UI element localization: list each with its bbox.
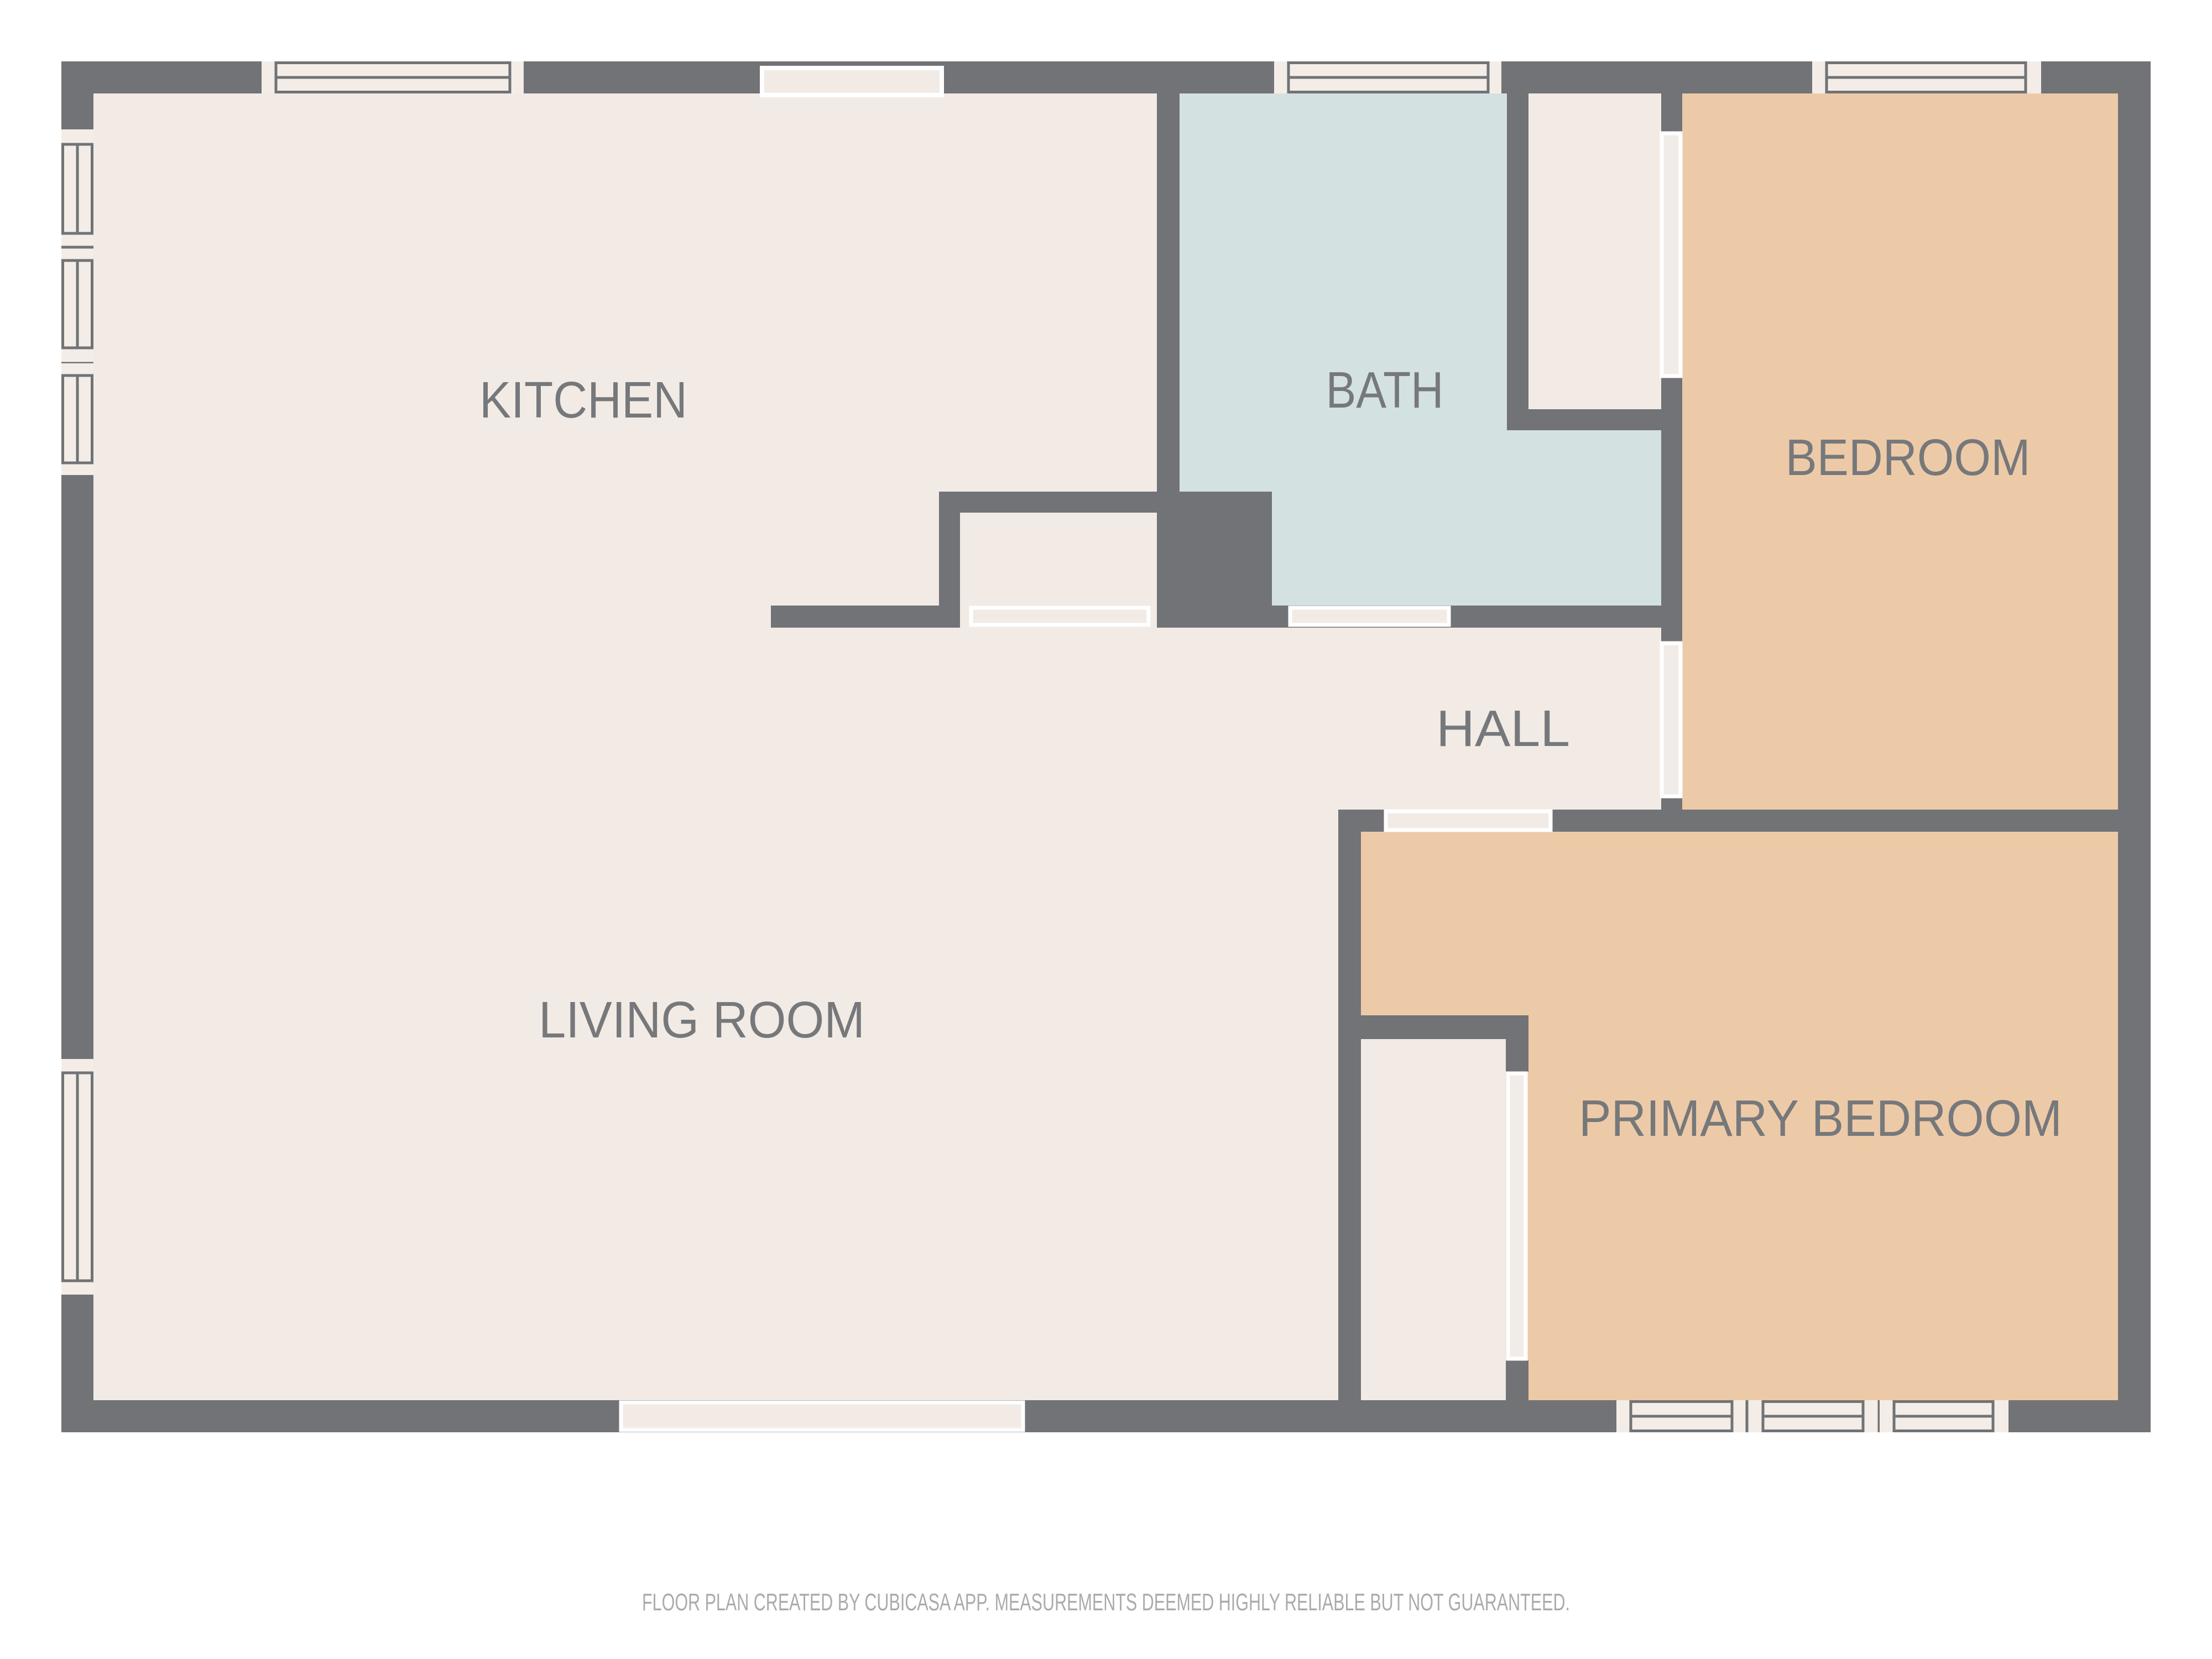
svg-text:BATH: BATH xyxy=(1326,361,1444,419)
svg-text:PRIMARY BEDROOM: PRIMARY BEDROOM xyxy=(1579,1089,2062,1147)
svg-text:LIVING ROOM: LIVING ROOM xyxy=(539,991,865,1048)
svg-text:KITCHEN: KITCHEN xyxy=(479,371,687,429)
svg-text:HALL: HALL xyxy=(1436,700,1570,757)
svg-text:FLOOR PLAN CREATED BY CUBICASA: FLOOR PLAN CREATED BY CUBICASA APP. MEAS… xyxy=(642,1589,1570,1616)
svg-text:BEDROOM: BEDROOM xyxy=(1786,429,2031,486)
